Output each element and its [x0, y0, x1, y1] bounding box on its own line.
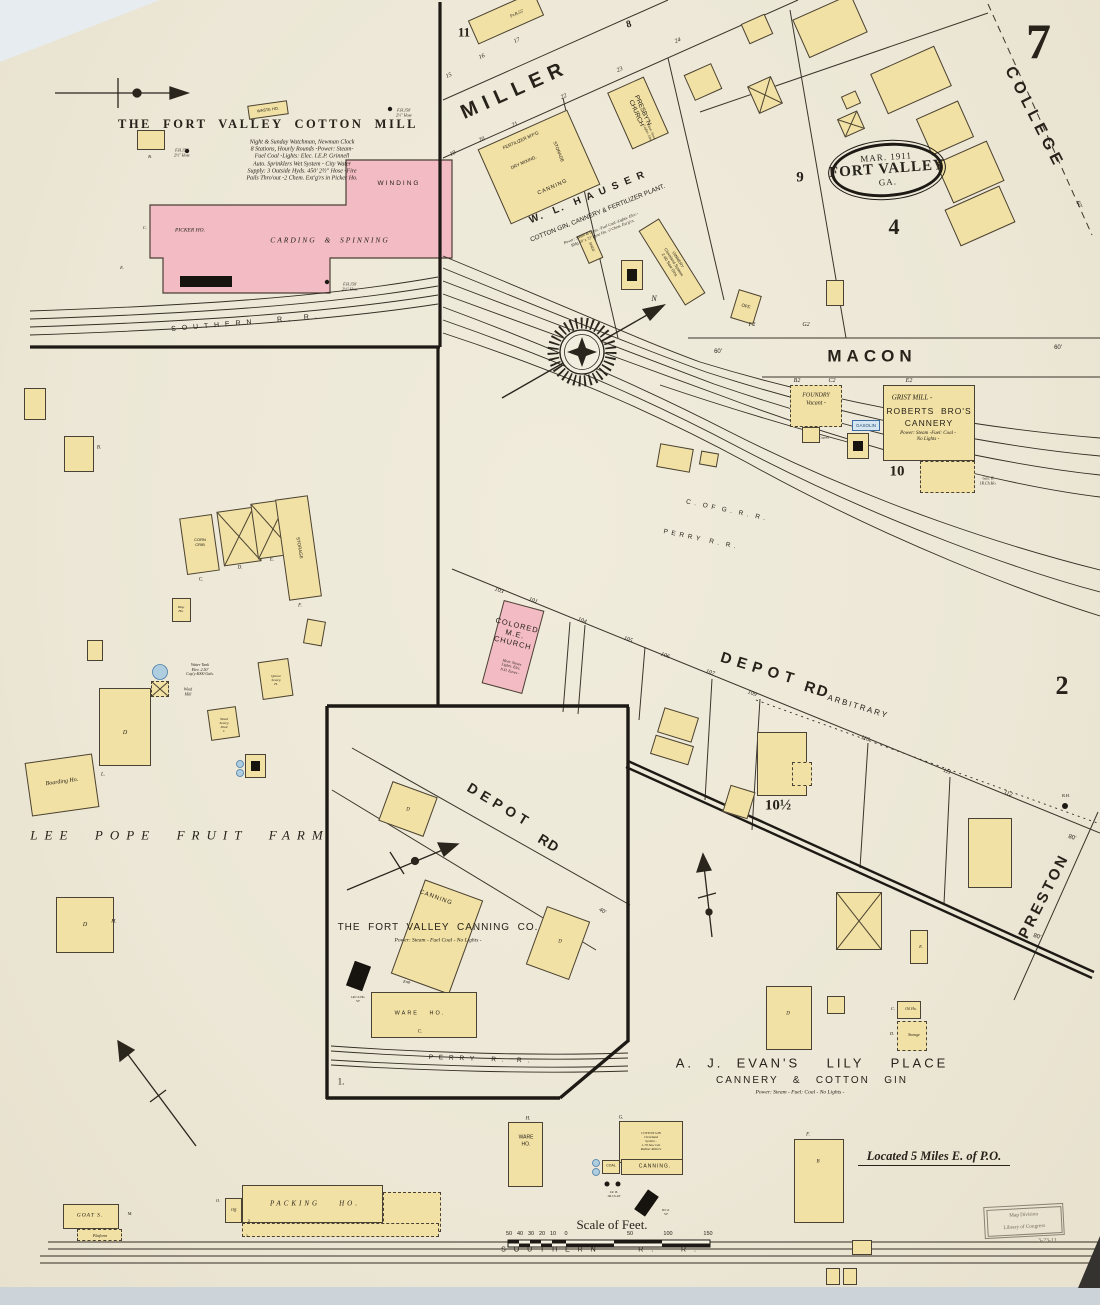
- church-label: COLORED M.E. CHURCH: [490, 616, 539, 653]
- canning-co-note: Power: Steam - Fuel Coal - No Lights -: [394, 938, 481, 944]
- evans-title: A. J. EVAN'S LILY PLACE: [676, 1057, 949, 1070]
- street-depot-rd-inset: RD: [536, 831, 562, 854]
- building-label: OFF.: [741, 303, 752, 310]
- evans-subtitle: CANNERY & COTTON GIN: [716, 1076, 908, 1086]
- lot-number: 20: [478, 136, 486, 144]
- mill-title: THE FORT VALLEY COTTON MILL: [118, 118, 418, 131]
- map-state: Ga.: [878, 177, 897, 188]
- roberts-title: GRIST MILL -: [892, 395, 933, 402]
- building-letter: G.: [619, 1116, 624, 1121]
- stamp-date-note: 3-23-11: [1038, 1238, 1057, 1244]
- floor-label: 1: [246, 1234, 248, 1238]
- building-label: CORN CRIB: [194, 538, 206, 548]
- building-label: FERTILIZER M'F'G: [502, 131, 539, 151]
- mill-room-label: CARDING & SPINNING: [270, 236, 390, 244]
- block-number: 4: [889, 216, 900, 238]
- mill-room-label: PICKER HO.: [175, 228, 205, 234]
- hydrant-note: F.H.150' 2½" Hose: [174, 148, 190, 157]
- gasoline-label: GASOLIN: [856, 424, 876, 429]
- building-label: Oil Ho.: [905, 1008, 916, 1012]
- building-label: DRY MIXING.: [510, 155, 537, 170]
- hauser-note: Power: Steam & Gaso. -Fuel Coal -Lights:…: [563, 212, 640, 251]
- street-depot-rd: RD: [803, 679, 832, 701]
- street-depot-rd: DEPOT: [719, 650, 802, 688]
- building-letter: E.: [120, 266, 124, 271]
- water-tank-note: Water Tank Elev. 2.50' Cap'y 4000 Gals.: [186, 663, 214, 677]
- building-letter: F.: [806, 1133, 810, 1138]
- lot-number: 22: [560, 93, 568, 101]
- building-label: GINNERY Cleveland System 2-60 Saw Gins: [659, 244, 689, 279]
- mill-room-label: WINDING: [378, 181, 421, 188]
- building-label: PACKING HO.: [270, 1201, 360, 1208]
- lot-number: 17: [513, 37, 521, 45]
- utility-note: H.Ch. 50': [662, 1209, 670, 1217]
- building-label: WARE HO.: [519, 1135, 534, 1148]
- street-width: 80': [1067, 834, 1076, 842]
- lot-number: 109: [747, 690, 758, 699]
- lot-number: 101: [528, 597, 539, 606]
- building-letter: D: [786, 1012, 790, 1017]
- street-note-arbitrary: ARBITRARY: [826, 694, 889, 720]
- building-letter: D: [406, 808, 410, 813]
- lot-number: Pr.B.55': [509, 9, 524, 19]
- railroad-southern-top: S O U T H E R N R . R .: [171, 313, 319, 333]
- building-letter: M.: [128, 1212, 133, 1217]
- block-number: 1.: [338, 1078, 345, 1087]
- building-label: CANNING: [419, 889, 454, 906]
- lot-number: 106: [660, 652, 671, 661]
- building-label: CANNING: [537, 179, 569, 197]
- roberts-title: ROBERTS BRO'S: [886, 407, 971, 416]
- building-letter: D: [83, 922, 87, 928]
- lot-number: 15: [445, 72, 453, 80]
- building-letter: C.: [199, 578, 204, 583]
- railroad-c-of-g: C . O F G . R . R .: [685, 499, 766, 522]
- street-depot-rd-inset: DEPOT: [465, 780, 535, 830]
- building-label: STORAGE: [552, 141, 564, 163]
- building-label: Eng.: [403, 980, 410, 984]
- building-letter: E.: [270, 558, 274, 563]
- building-label: SHED: [588, 242, 595, 252]
- building-letter: D.: [890, 1032, 894, 1037]
- building-letter: C.: [891, 1007, 895, 1012]
- mill-description: Night & Sunday Watchman, Newman Clock 8 …: [246, 139, 357, 182]
- building-letter: E.: [919, 945, 923, 950]
- building-label: COAL: [606, 1164, 616, 1168]
- building-label: GOAT S.: [77, 1213, 104, 1219]
- building-label: COTTON GIN Cleveland System - 1-70 Saw G…: [641, 1132, 662, 1152]
- building-letter: B.: [148, 155, 152, 160]
- building-letter: L.: [101, 773, 105, 778]
- block-number: 2: [1056, 673, 1069, 699]
- church-note: Heat: Stoves Lights: Elec. N.D. Eaves -: [500, 658, 522, 675]
- block-number: 10½: [765, 799, 791, 814]
- scale-tick: 150: [703, 1231, 712, 1237]
- block-number: 8: [625, 20, 632, 31]
- building-letter: O.: [216, 1199, 220, 1204]
- hydrant-note: F.H.150' 2½" Hose: [396, 108, 412, 117]
- lot-number: 111: [942, 768, 952, 776]
- lot-number: 23: [616, 66, 624, 74]
- block-number: 10: [890, 465, 905, 480]
- roberts-note: Power: Steam -Fuel: Coal - No Lights -: [900, 431, 956, 444]
- railroad-southern-bottom: S O U T H E R N R . R .: [501, 1247, 699, 1254]
- street-width: 60': [1054, 345, 1062, 351]
- scale-title: Scale of Feet.: [556, 1217, 668, 1233]
- building-label: FOUNDRY Vacant -: [802, 393, 830, 408]
- lot-letter: B2: [794, 378, 801, 384]
- hauser-subtitle: COTTON GIN, CANNERY & FERTILIZER PLANT.: [530, 184, 667, 244]
- building-letter: H.: [526, 1117, 531, 1122]
- building-letter: D: [558, 940, 562, 945]
- building-label: WASTE HO.: [257, 106, 280, 113]
- building-label: WARE HO.: [395, 1011, 446, 1017]
- scale-tick: 40: [517, 1231, 523, 1237]
- scale-tick: 30: [528, 1231, 534, 1237]
- building-letter: C.: [418, 1030, 423, 1035]
- church-label: PRESBY'N CHURCH: [626, 94, 653, 130]
- library-stamp: Map Division Library of Congress: [983, 1203, 1065, 1239]
- building-label: Wag. Ho.: [178, 605, 185, 613]
- stamp-line2: Library of Congress: [1003, 1223, 1045, 1231]
- street-width: 80': [1032, 933, 1041, 941]
- utility-note: Dr. B. 1R.Ch.40': [607, 1190, 621, 1198]
- lot-letter: G2: [802, 322, 809, 328]
- scale-tick: 50: [506, 1231, 512, 1237]
- building-letter: M.: [111, 920, 116, 925]
- lot-number: 24: [674, 37, 682, 45]
- lot-letter: E2: [906, 378, 913, 384]
- building-label: CANNING.: [639, 1165, 671, 1170]
- floor-label: 2: [248, 1219, 250, 1223]
- evans-note: Power: Steam - Fuel: Coal - No Lights -: [756, 1090, 845, 1096]
- scale-tick: 20: [539, 1231, 545, 1237]
- railroad-perry: P E R R Y R . R .: [663, 529, 738, 551]
- building-label: Off.: [231, 1208, 237, 1212]
- building-letter: C.: [143, 226, 147, 231]
- lot-letter: F2: [749, 322, 756, 328]
- lot-number: 107: [705, 669, 716, 678]
- canning-co-title: THE FORT VALLEY CANNING CO.: [338, 923, 539, 933]
- utility-note: Gas. B 1R.Ch.Ho.: [980, 476, 997, 485]
- building-label: Storage: [908, 1034, 920, 1038]
- lot-number: 103: [494, 587, 505, 596]
- utility-note: 1R.Ch.Ho. 50': [351, 996, 365, 1004]
- church-note: Heat: Stove Lights: Elec.: [642, 123, 656, 142]
- street-width: 60': [714, 349, 722, 355]
- building-letter: B: [816, 1160, 819, 1165]
- map-title-oval: Mar. 1911 Fort Valley Ga.: [826, 136, 948, 204]
- railroad-perry-inset: P E R R Y R . R .: [429, 1055, 532, 1065]
- building-letter: D.: [238, 566, 243, 571]
- building-label: Platform: [93, 1234, 107, 1238]
- sheet-number: 7: [1026, 16, 1051, 66]
- scan-edge-bottom: [0, 1287, 1100, 1305]
- lot-letter: C2: [828, 378, 835, 384]
- street-macon: MACON: [827, 348, 916, 365]
- building-letter: B.: [97, 446, 101, 451]
- building-label: Boarding Ho.: [45, 777, 78, 788]
- lot-number: 21: [511, 121, 519, 129]
- street-preston: PRESTON: [1016, 851, 1072, 941]
- lot-number: 104: [577, 617, 588, 626]
- located-note: Located 5 Miles E. of P.O.: [858, 1149, 1010, 1166]
- street-miller: MILLER: [458, 57, 573, 123]
- block-number: 9: [796, 171, 804, 186]
- street-width: 60': [1074, 201, 1082, 210]
- sanborn-map-sheet: MILLERCOLLEGEMACONDEPOTRDARBITRARYDEPOTR…: [0, 0, 1100, 1305]
- lot-number: 105: [623, 636, 634, 645]
- building-letter: F.: [298, 604, 302, 609]
- building-letter: D: [123, 730, 127, 736]
- building-label: Cupola: [819, 436, 829, 440]
- utility-note: B.H.: [1062, 794, 1070, 799]
- block-number: 11: [458, 26, 470, 39]
- hauser-title: W. L. H A U S E R: [528, 170, 648, 226]
- lot-number: 19: [449, 150, 457, 158]
- compass-n: N: [651, 295, 656, 303]
- farm-title: LEE POPE FRUIT FARM: [30, 829, 329, 842]
- building-label: STORAGE: [295, 537, 303, 559]
- hydrant-note: F.H.150' 2½" Hose: [342, 282, 358, 291]
- building-label: Quince Seas'g H.: [271, 674, 281, 686]
- lot-number: 16: [478, 53, 486, 61]
- street-college: COLLEGE: [1001, 64, 1066, 171]
- lot-number: 112: [1003, 790, 1013, 799]
- windmill-note: Wind Mill: [184, 687, 192, 696]
- lot-number: 110: [860, 735, 870, 744]
- stamp-line1: Map Division: [1009, 1211, 1038, 1218]
- building-label: Wood Seas'g Shed J.: [220, 717, 229, 733]
- roberts-title: CANNERY: [905, 419, 953, 428]
- street-width: 40': [598, 908, 607, 916]
